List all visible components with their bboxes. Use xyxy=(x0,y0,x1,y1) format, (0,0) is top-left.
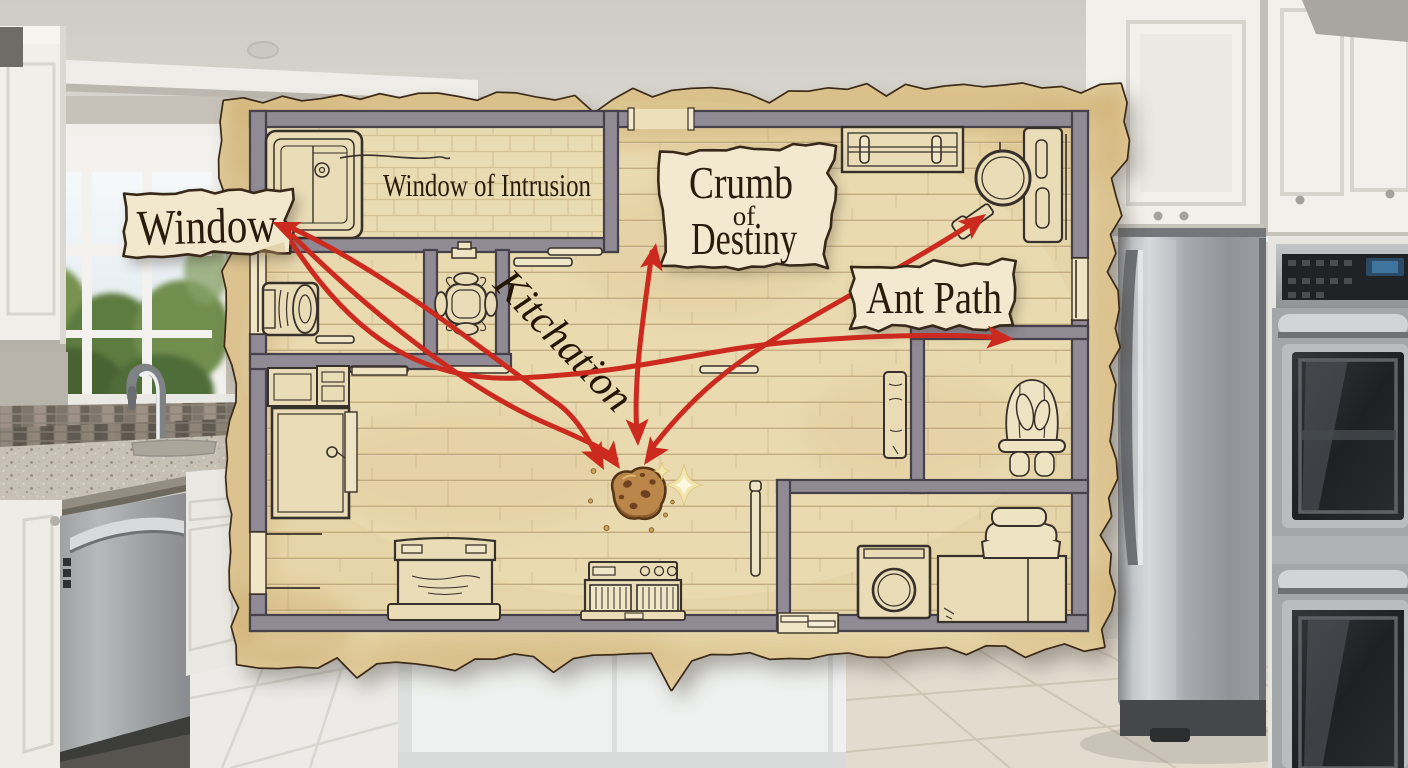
svg-text:Window: Window xyxy=(136,196,277,256)
svg-text:Window of Intrusion: Window of Intrusion xyxy=(383,167,591,203)
svg-text:Ant Path: Ant Path xyxy=(866,273,1002,323)
svg-text:Destiny: Destiny xyxy=(691,214,797,264)
